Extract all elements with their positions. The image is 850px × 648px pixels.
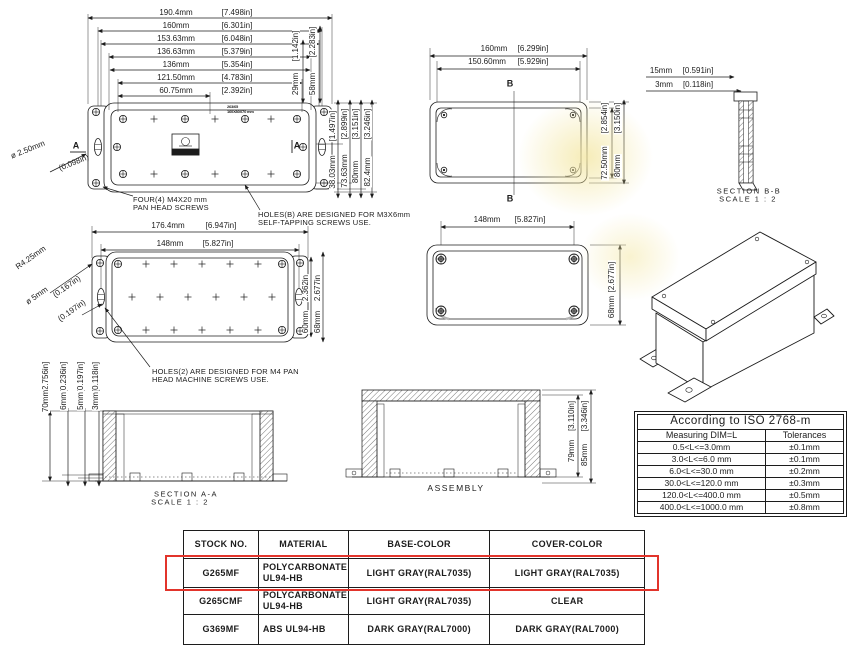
section-bb-scale: SCALE 1 : 2: [718, 195, 778, 203]
dim-in: [0.591in]: [682, 67, 715, 75]
dim-mm: 68mm: [314, 310, 322, 334]
dim-in: 2.677in: [314, 274, 322, 302]
dim-in: [6.048in]: [221, 35, 254, 43]
tolerance-table-title: According to ISO 2768-m: [638, 415, 844, 430]
dim-in: [3.110in]: [568, 400, 576, 432]
stock-table-header: STOCK NO. MATERIAL BASE-COLOR COVER-COLO…: [184, 531, 645, 559]
note-screws: PAN HEAD SCREWS: [133, 204, 209, 212]
note-holes-b: SELF-TAPPING SCREWS USE.: [258, 219, 371, 227]
dim-mm: 136.63mm: [156, 48, 196, 56]
dim-mm: 6mm: [60, 391, 68, 411]
tolerance-row: 3.0<L<=6.0 mm±0.1mm: [638, 454, 844, 466]
dim-in: [5.929in]: [517, 58, 550, 66]
dim-mm: 72.50mm: [601, 145, 609, 180]
dim-mm: 150.60mm: [467, 58, 507, 66]
dim-in: [5.354in]: [221, 61, 254, 69]
dim-in: [5.827in]: [202, 240, 235, 248]
stock-table: STOCK NO. MATERIAL BASE-COLOR COVER-COLO…: [183, 530, 645, 645]
stock-no: G265CMF: [184, 588, 259, 615]
base-color: DARK GRAY(RAL7000): [348, 615, 490, 645]
dim-mm: 160mm: [162, 22, 191, 30]
dim-in: [0.197in]: [77, 361, 85, 394]
dim-mm: 73.63mm: [341, 153, 349, 188]
tolerance-row: 400.0<L<=1000.0 mm±0.8mm: [638, 502, 844, 514]
dim-mm: 176.4mm: [150, 222, 185, 230]
dim-mm: 153.63mm: [156, 35, 196, 43]
stock-no: G369MF: [184, 615, 259, 645]
dim-mm: 190.4mm: [158, 9, 193, 17]
section-bb-view: [646, 77, 757, 190]
dim-in: [2.899in]: [341, 108, 349, 141]
section-b-marker: B: [506, 80, 515, 89]
dim-mm: 3mm: [654, 81, 674, 89]
dim-in: [3.246in]: [364, 108, 372, 141]
stock-row-g265cmf: G265CMF POLYCARBONATEUL94-HB LIGHT GRAY(…: [184, 588, 645, 615]
dim-mm: 148mm: [156, 240, 185, 248]
dim-in: [3.346in]: [581, 400, 589, 433]
material: ABS UL94-HB: [258, 615, 348, 645]
dim-mm: 85mm: [581, 443, 589, 467]
dim-mm: 136mm: [162, 61, 191, 69]
lid-view: [427, 221, 626, 325]
dim-mm: 148mm: [473, 216, 502, 224]
stock-row-g369mf: G369MF ABS UL94-HB DARK GRAY(RAL7000) DA…: [184, 615, 645, 645]
dim-mm: 80mm: [352, 160, 360, 184]
stock-no: G265MF: [184, 559, 259, 588]
product-marking: 263/65 160X80X70 mm: [227, 105, 254, 114]
dim-in: [6.301in]: [221, 22, 254, 30]
dim-in: [0.118in]: [682, 81, 714, 89]
section-a-marker: A: [72, 142, 81, 151]
dim-mm: 60.75mm: [158, 87, 193, 95]
dim-in: [7.498in]: [221, 9, 254, 17]
dim-in: [3.150in]: [614, 102, 622, 135]
tolerance-col-header: Tolerances: [766, 430, 844, 442]
section-aa-view: [42, 408, 287, 486]
cover-color: CLEAR: [490, 588, 645, 615]
dim-in: [2.283in]: [309, 26, 317, 59]
dim-mm: 29mm: [292, 72, 300, 96]
tolerance-table: According to ISO 2768-m Measuring DIM=L …: [637, 414, 844, 514]
tolerance-col-header: Measuring DIM=L: [638, 430, 766, 442]
dim-mm: 38.03mm: [329, 154, 337, 189]
dim-mm: 58mm: [309, 72, 317, 96]
section-a-marker: A: [293, 142, 302, 151]
dim-in: [1.142in]: [292, 30, 300, 63]
dim-mm: 70mm: [42, 389, 50, 413]
dim-mm: 3mm: [92, 391, 100, 411]
dim-in: [2.677in]: [608, 261, 616, 294]
dim-in: [4.783in]: [221, 74, 254, 82]
dim-in: [0.118in]: [92, 361, 100, 393]
dim-in: [5.827in]: [514, 216, 547, 224]
technical-drawing-sheet: 190.4mm [7.498in] 160mm [6.301in] 153.63…: [0, 0, 850, 648]
dim-mm: 79mm: [568, 439, 576, 463]
dim-mm: 82.4mm: [364, 157, 372, 188]
dim-in: [1.497in]: [329, 110, 337, 143]
assembly-label: ASSEMBLY: [426, 484, 485, 493]
tolerance-row: 6.0<L<=30.0 mm±0.2mm: [638, 466, 844, 478]
dim-in: [2.854in]: [601, 102, 609, 135]
tolerance-row: 120.0<L<=400.0 mm±0.5mm: [638, 490, 844, 502]
dim-mm: 121.50mm: [156, 74, 196, 82]
dim-in: [0.236in]: [60, 361, 68, 394]
dim-mm: 80mm: [614, 154, 622, 178]
tolerance-row: 0.5<L<=3.0mm±0.1mm: [638, 442, 844, 454]
isometric-view: [640, 232, 834, 402]
section-b-marker: B: [506, 195, 515, 204]
section-aa-scale: SCALE 1 : 2: [150, 498, 210, 506]
dim-mm: 60mm: [302, 310, 310, 334]
base-color: LIGHT GRAY(RAL7035): [348, 559, 490, 588]
dim-mm: 15mm: [649, 67, 673, 75]
base-color: LIGHT GRAY(RAL7035): [348, 588, 490, 615]
stock-row-g265mf: G265MF POLYCARBONATEUL94-HB LIGHT GRAY(R…: [184, 559, 645, 588]
assembly-view: [346, 390, 596, 483]
dim-in: [2.392in]: [221, 87, 254, 95]
cover-color: DARK GRAY(RAL7000): [490, 615, 645, 645]
base-view: [50, 226, 323, 367]
dim-mm: 68mm: [608, 295, 616, 319]
dim-mm: 160mm: [480, 45, 509, 53]
material: POLYCARBONATEUL94-HB: [258, 588, 348, 615]
material: POLYCARBONATEUL94-HB: [258, 559, 348, 588]
dim-in: [6.947in]: [205, 222, 238, 230]
tolerance-row: 30.0<L<=120.0 mm±0.3mm: [638, 478, 844, 490]
dim-in: [6.299in]: [517, 45, 550, 53]
dim-in: [3.151in]: [352, 108, 360, 141]
dim-in: [5.379in]: [221, 48, 254, 56]
note-holes-2: HEAD MACHINE SCREWS USE.: [152, 376, 269, 384]
dim-mm: 5mm: [77, 391, 85, 411]
cover-color: LIGHT GRAY(RAL7035): [490, 559, 645, 588]
dim-in: 2.362in: [302, 274, 310, 302]
